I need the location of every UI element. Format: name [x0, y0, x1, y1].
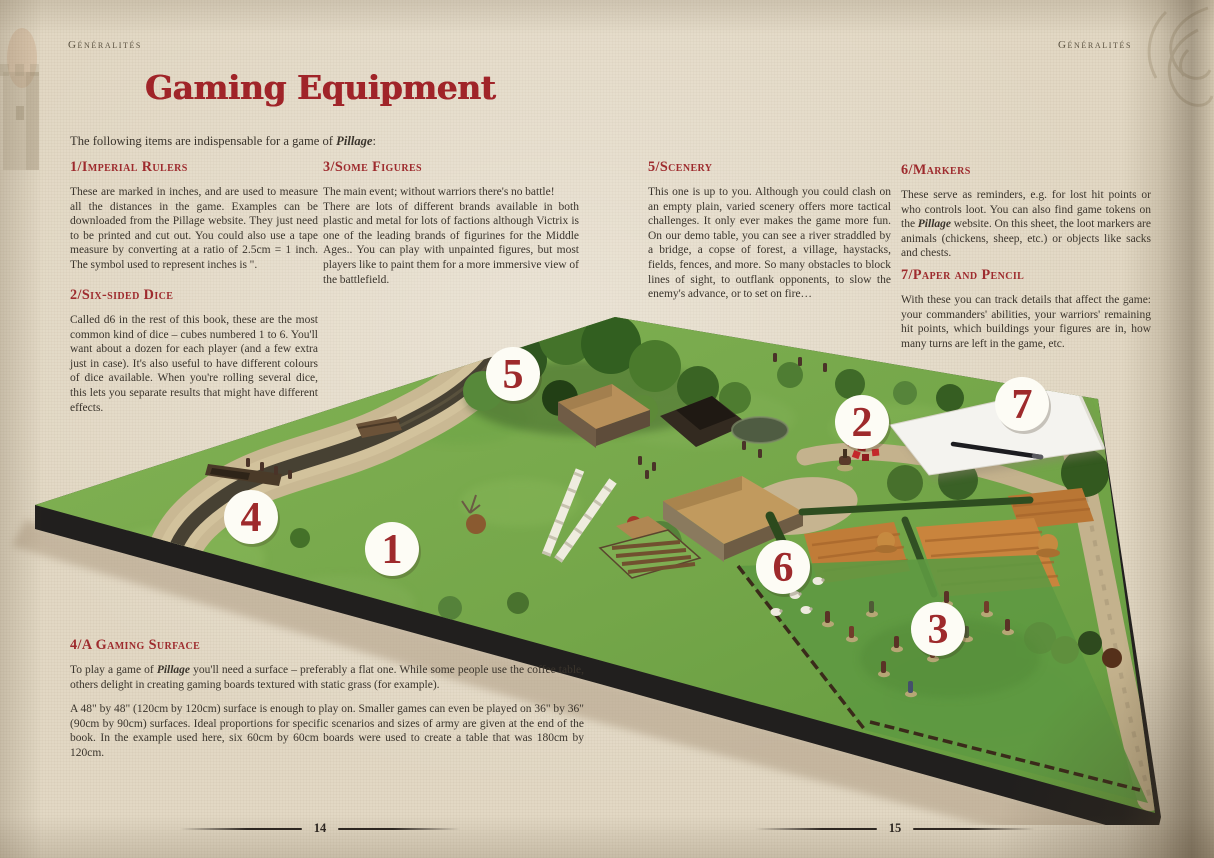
running-header-left: Généralités: [68, 39, 142, 51]
svg-text:5: 5: [503, 352, 524, 398]
section-scenery: 5/Scenery This one is up to you. Althoug…: [648, 159, 891, 302]
section-gaming-surface: 4/A Gaming Surface To play a game of Pil…: [70, 637, 584, 761]
section-body: Called d6 in the rest of this book, thes…: [70, 313, 318, 415]
section-heading: 1/Imperial Rulers: [70, 159, 318, 176]
section-body-line1: The main event; without warriors there's…: [323, 185, 579, 200]
section-heading: 4/A Gaming Surface: [70, 637, 584, 654]
section-some-figures: 3/Some Figures The main event; without w…: [323, 159, 579, 287]
section-body: To play a game of Pillage you'll need a …: [70, 663, 584, 692]
section-body: There are lots of different brands avail…: [323, 200, 579, 288]
svg-text:7: 7: [1012, 382, 1033, 428]
section-paper-and-pencil: 7/Paper and Pencil With these you can tr…: [901, 267, 1151, 351]
section-heading: 7/Paper and Pencil: [901, 267, 1151, 284]
page-number-right: 15: [889, 821, 902, 836]
section-heading: 3/Some Figures: [323, 159, 579, 176]
tower-watermark: [0, 10, 70, 210]
svg-text:3: 3: [928, 607, 949, 653]
svg-text:6: 6: [773, 545, 794, 591]
book-spread: Généralités Généralités Gaming Equipment…: [0, 0, 1214, 858]
section-heading: 5/Scenery: [648, 159, 891, 176]
svg-text:2: 2: [852, 400, 873, 446]
intro-line: The following items are indispensable fo…: [70, 134, 630, 149]
section-body: This one is up to you. Although you coul…: [648, 185, 891, 302]
svg-text:1: 1: [382, 527, 403, 573]
section-body: With these you can track details that af…: [901, 293, 1151, 351]
section-markers: 6/Markers These serve as reminders, e.g.…: [901, 162, 1151, 261]
dragon-watermark: [1078, 0, 1214, 150]
section-body: These are marked in inches, and are used…: [70, 185, 318, 273]
page-title: Gaming Equipment: [70, 68, 570, 107]
footer-rule: [755, 828, 877, 830]
svg-text:4: 4: [241, 495, 262, 541]
section-body: A 48" by 48" (120cm by 120cm) surface is…: [70, 702, 584, 760]
footer-rule: [338, 828, 460, 830]
footer-left: 14: [150, 821, 490, 836]
section-imperial-rulers: 1/Imperial Rulers These are marked in in…: [70, 159, 318, 273]
footer-rule: [180, 828, 302, 830]
footer-rule: [913, 828, 1035, 830]
section-heading: 6/Markers: [901, 162, 1151, 179]
running-header-right: Généralités: [1058, 39, 1132, 51]
page-number-left: 14: [314, 821, 327, 836]
section-six-sided-dice: 2/Six-sided Dice Called d6 in the rest o…: [70, 287, 318, 415]
footer-right: 15: [725, 821, 1065, 836]
section-body: These serve as reminders, e.g. for lost …: [901, 188, 1151, 261]
section-heading: 2/Six-sided Dice: [70, 287, 318, 304]
